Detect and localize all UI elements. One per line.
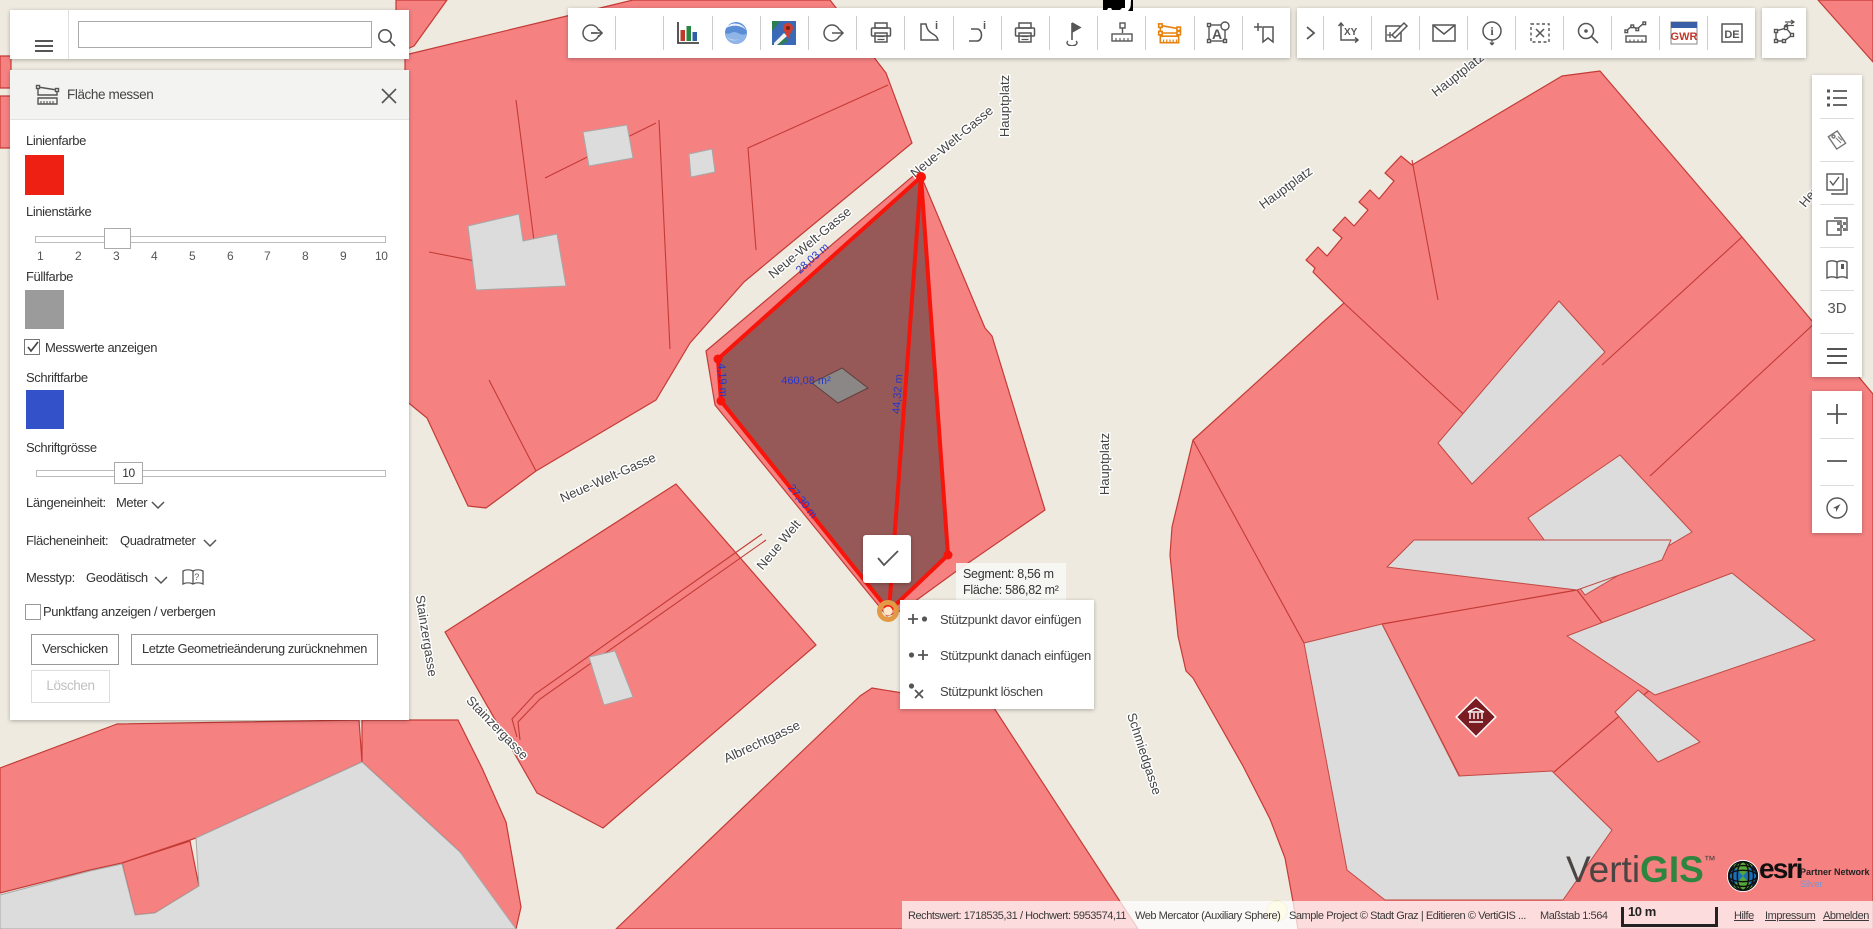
svg-text:A: A [1212, 26, 1222, 42]
svg-text:?: ? [194, 572, 199, 582]
svg-text:GWR: GWR [1670, 31, 1697, 43]
svg-text:i: i [1490, 24, 1494, 38]
svg-text:i: i [935, 20, 938, 32]
svg-text:i: i [983, 20, 986, 32]
svg-text:Hauptplatz: Hauptplatz [1097, 433, 1112, 495]
svg-text:XY: XY [1344, 27, 1358, 38]
svg-text:4,19 m: 4,19 m [715, 363, 729, 397]
svg-text:460,08 m²: 460,08 m² [781, 375, 831, 387]
svg-text:DE: DE [1724, 29, 1739, 41]
svg-text:Hauptplatz: Hauptplatz [997, 75, 1012, 137]
